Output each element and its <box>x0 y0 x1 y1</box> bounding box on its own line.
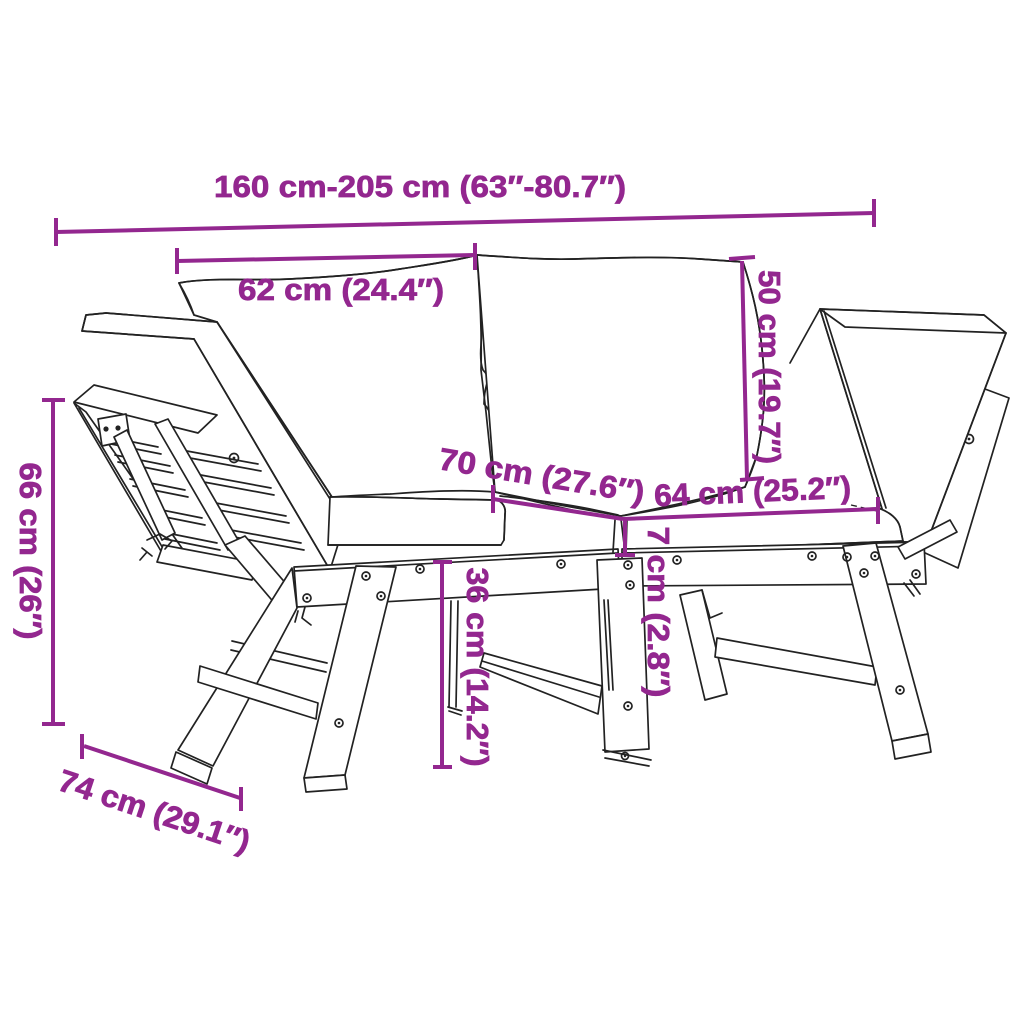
svg-text:66 cm (26″): 66 cm (26″) <box>13 463 48 640</box>
svg-text:36 cm (14.2″): 36 cm (14.2″) <box>460 568 495 767</box>
svg-text:160 cm-205 cm (63″-80.7″): 160 cm-205 cm (63″-80.7″) <box>214 169 626 204</box>
svg-text:7 cm (2.8″): 7 cm (2.8″) <box>641 527 676 698</box>
svg-text:62 cm (24.4″): 62 cm (24.4″) <box>238 272 444 307</box>
svg-text:50 cm (19.7″): 50 cm (19.7″) <box>752 270 787 464</box>
